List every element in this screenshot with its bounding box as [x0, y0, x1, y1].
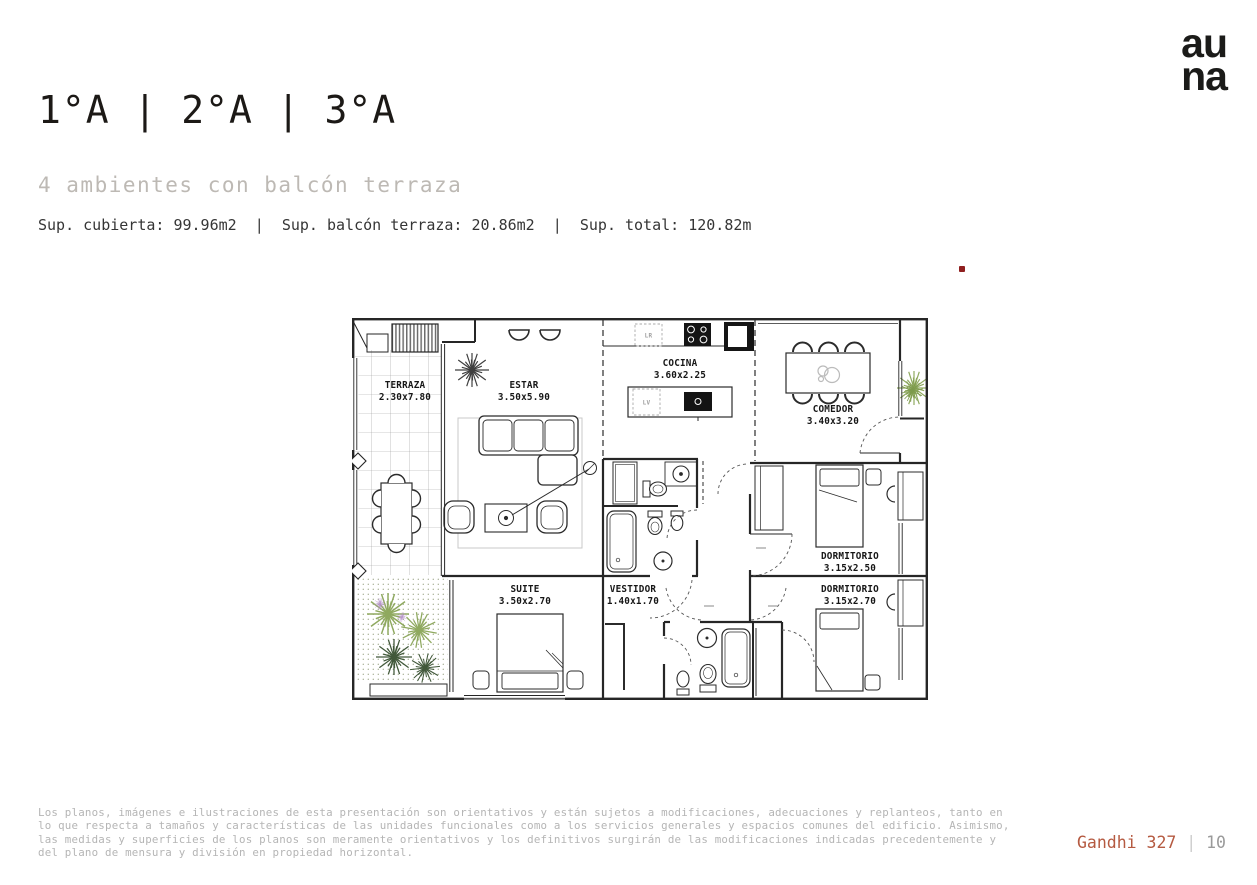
- fridge: [724, 322, 754, 351]
- disclaimer-line: Los planos, imágenes e ilustraciones de …: [38, 806, 1010, 819]
- location-marker-dot: [959, 266, 965, 272]
- entry-closet: [755, 466, 783, 530]
- sink-drain: [706, 637, 709, 640]
- bathroom-sink: [665, 462, 697, 486]
- footer-separator: |: [1186, 833, 1196, 852]
- room-dims-dormitorio-2: 3.15x2.70: [824, 596, 876, 607]
- room-label-cocina: COCINA: [663, 358, 698, 369]
- coffee-table: [485, 504, 527, 532]
- room-dims-suite: 3.50x2.70: [499, 596, 551, 607]
- toilet: [648, 511, 662, 535]
- logo-line-bottom: na: [1181, 60, 1227, 93]
- legal-disclaimer: Los planos, imágenes e ilustraciones de …: [38, 806, 1010, 860]
- room-label-dormitorio-2: DORMITORIO: [821, 584, 879, 595]
- bar-stools: [509, 330, 560, 340]
- disclaimer-line: lo que respecta a tamaños y característi…: [38, 819, 1010, 832]
- room-label-vestidor: VESTIDOR: [610, 584, 657, 595]
- page-subtitle: 4 ambientes con balcón terraza: [38, 173, 462, 197]
- floor-plan-drawing: TERRAZA 2.30x7.80 ESTAR 3.50x5.90 COCINA…: [352, 318, 928, 700]
- bidet: [671, 511, 683, 531]
- room-label-suite: SUITE: [511, 584, 540, 595]
- nightstand: [866, 469, 881, 485]
- project-name: Gandhi 327: [1077, 833, 1176, 852]
- bed-dormitorio-2: [816, 609, 863, 691]
- vestidor-closet-wall: [605, 624, 624, 690]
- room-dims-terraza: 2.30x7.80: [379, 392, 431, 403]
- sofa: [479, 416, 578, 485]
- bed-suite: [497, 614, 563, 692]
- disclaimer-line: las medidas y superficies de los planos …: [38, 833, 1010, 846]
- surface-summary: Sup. cubierta: 99.96m2 | Sup. balcón ter…: [38, 216, 751, 234]
- patio-gravel-floor: [355, 576, 448, 680]
- disclaimer-line: del plano de mensura y división en propi…: [38, 846, 1010, 859]
- room-dims-comedor: 3.40x3.20: [807, 416, 859, 427]
- room-label-dormitorio-1: DORMITORIO: [821, 551, 879, 562]
- room-dims-cocina: 3.60x2.25: [654, 370, 706, 381]
- sink-drain: [662, 560, 665, 563]
- appliance-label-washer: LR: [645, 333, 653, 340]
- patio-planter: [370, 684, 447, 696]
- bench: [865, 675, 880, 690]
- bathtub-main: [722, 629, 750, 687]
- page-number: 10: [1206, 833, 1226, 852]
- bidet: [677, 671, 689, 695]
- room-label-estar: ESTAR: [510, 380, 539, 391]
- room-label-terraza: TERRAZA: [385, 380, 426, 391]
- page-title: 1°A | 2°A | 3°A: [38, 88, 396, 132]
- armchair: [444, 501, 474, 533]
- bed-dormitorio-1: [816, 465, 863, 547]
- closet-dormitorio-1: [887, 472, 923, 520]
- nightstand: [567, 671, 583, 689]
- plant-living: [455, 353, 489, 387]
- room-dims-vestidor: 1.40x1.70: [607, 596, 659, 607]
- nightstand: [473, 671, 489, 689]
- auna-logo: au na: [1181, 27, 1227, 93]
- stove: [684, 323, 711, 346]
- appliance-label-dishwasher: LV: [643, 400, 651, 407]
- terrace-table: [381, 483, 412, 544]
- bathtub-suite: [607, 511, 636, 572]
- footer-meta: Gandhi 327 | 10: [1077, 833, 1226, 852]
- room-dims-dormitorio-1: 3.15x2.50: [824, 563, 876, 574]
- shower-cabinet: [613, 462, 637, 504]
- armchair: [537, 501, 567, 533]
- floor-plan: TERRAZA 2.30x7.80 ESTAR 3.50x5.90 COCINA…: [352, 318, 928, 700]
- room-dims-estar: 3.50x5.90: [498, 392, 550, 403]
- toilet: [643, 481, 667, 497]
- closet-dormitorio-2: [887, 580, 923, 626]
- toilet: [700, 665, 716, 693]
- room-label-comedor: COMEDOR: [813, 404, 854, 415]
